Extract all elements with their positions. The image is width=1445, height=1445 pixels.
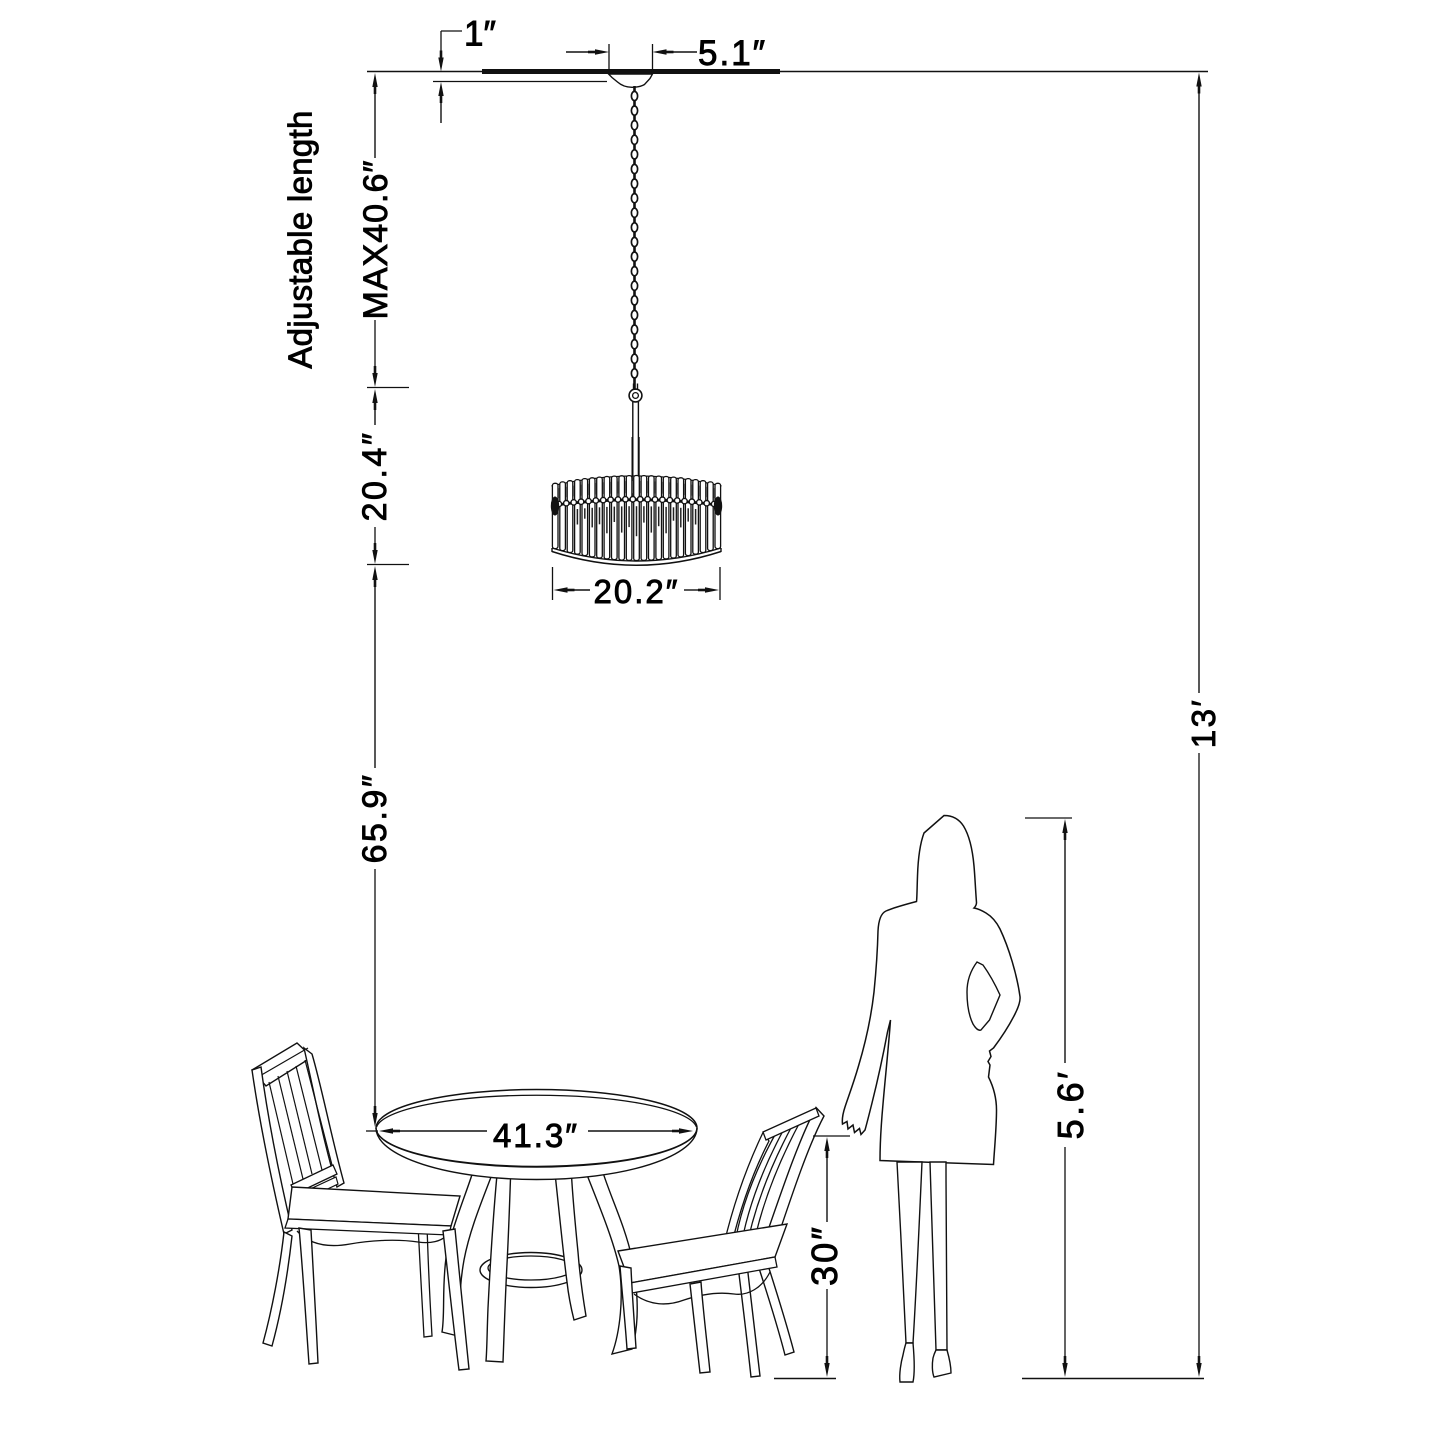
svg-text:13′: 13′ (1185, 698, 1222, 748)
svg-text:20.2″: 20.2″ (594, 573, 680, 610)
svg-text:5.6′: 5.6′ (1050, 1069, 1091, 1140)
svg-text:20.4″: 20.4″ (356, 431, 394, 522)
svg-text:5.1″: 5.1″ (698, 34, 767, 73)
svg-text:41.3″: 41.3″ (493, 1117, 579, 1154)
svg-text:1″: 1″ (464, 15, 496, 54)
svg-text:Adjustable length: Adjustable length (282, 110, 319, 368)
svg-text:65.9″: 65.9″ (356, 773, 394, 864)
svg-text:MAX40.6″: MAX40.6″ (357, 160, 395, 320)
svg-text:30″: 30″ (804, 1224, 845, 1286)
